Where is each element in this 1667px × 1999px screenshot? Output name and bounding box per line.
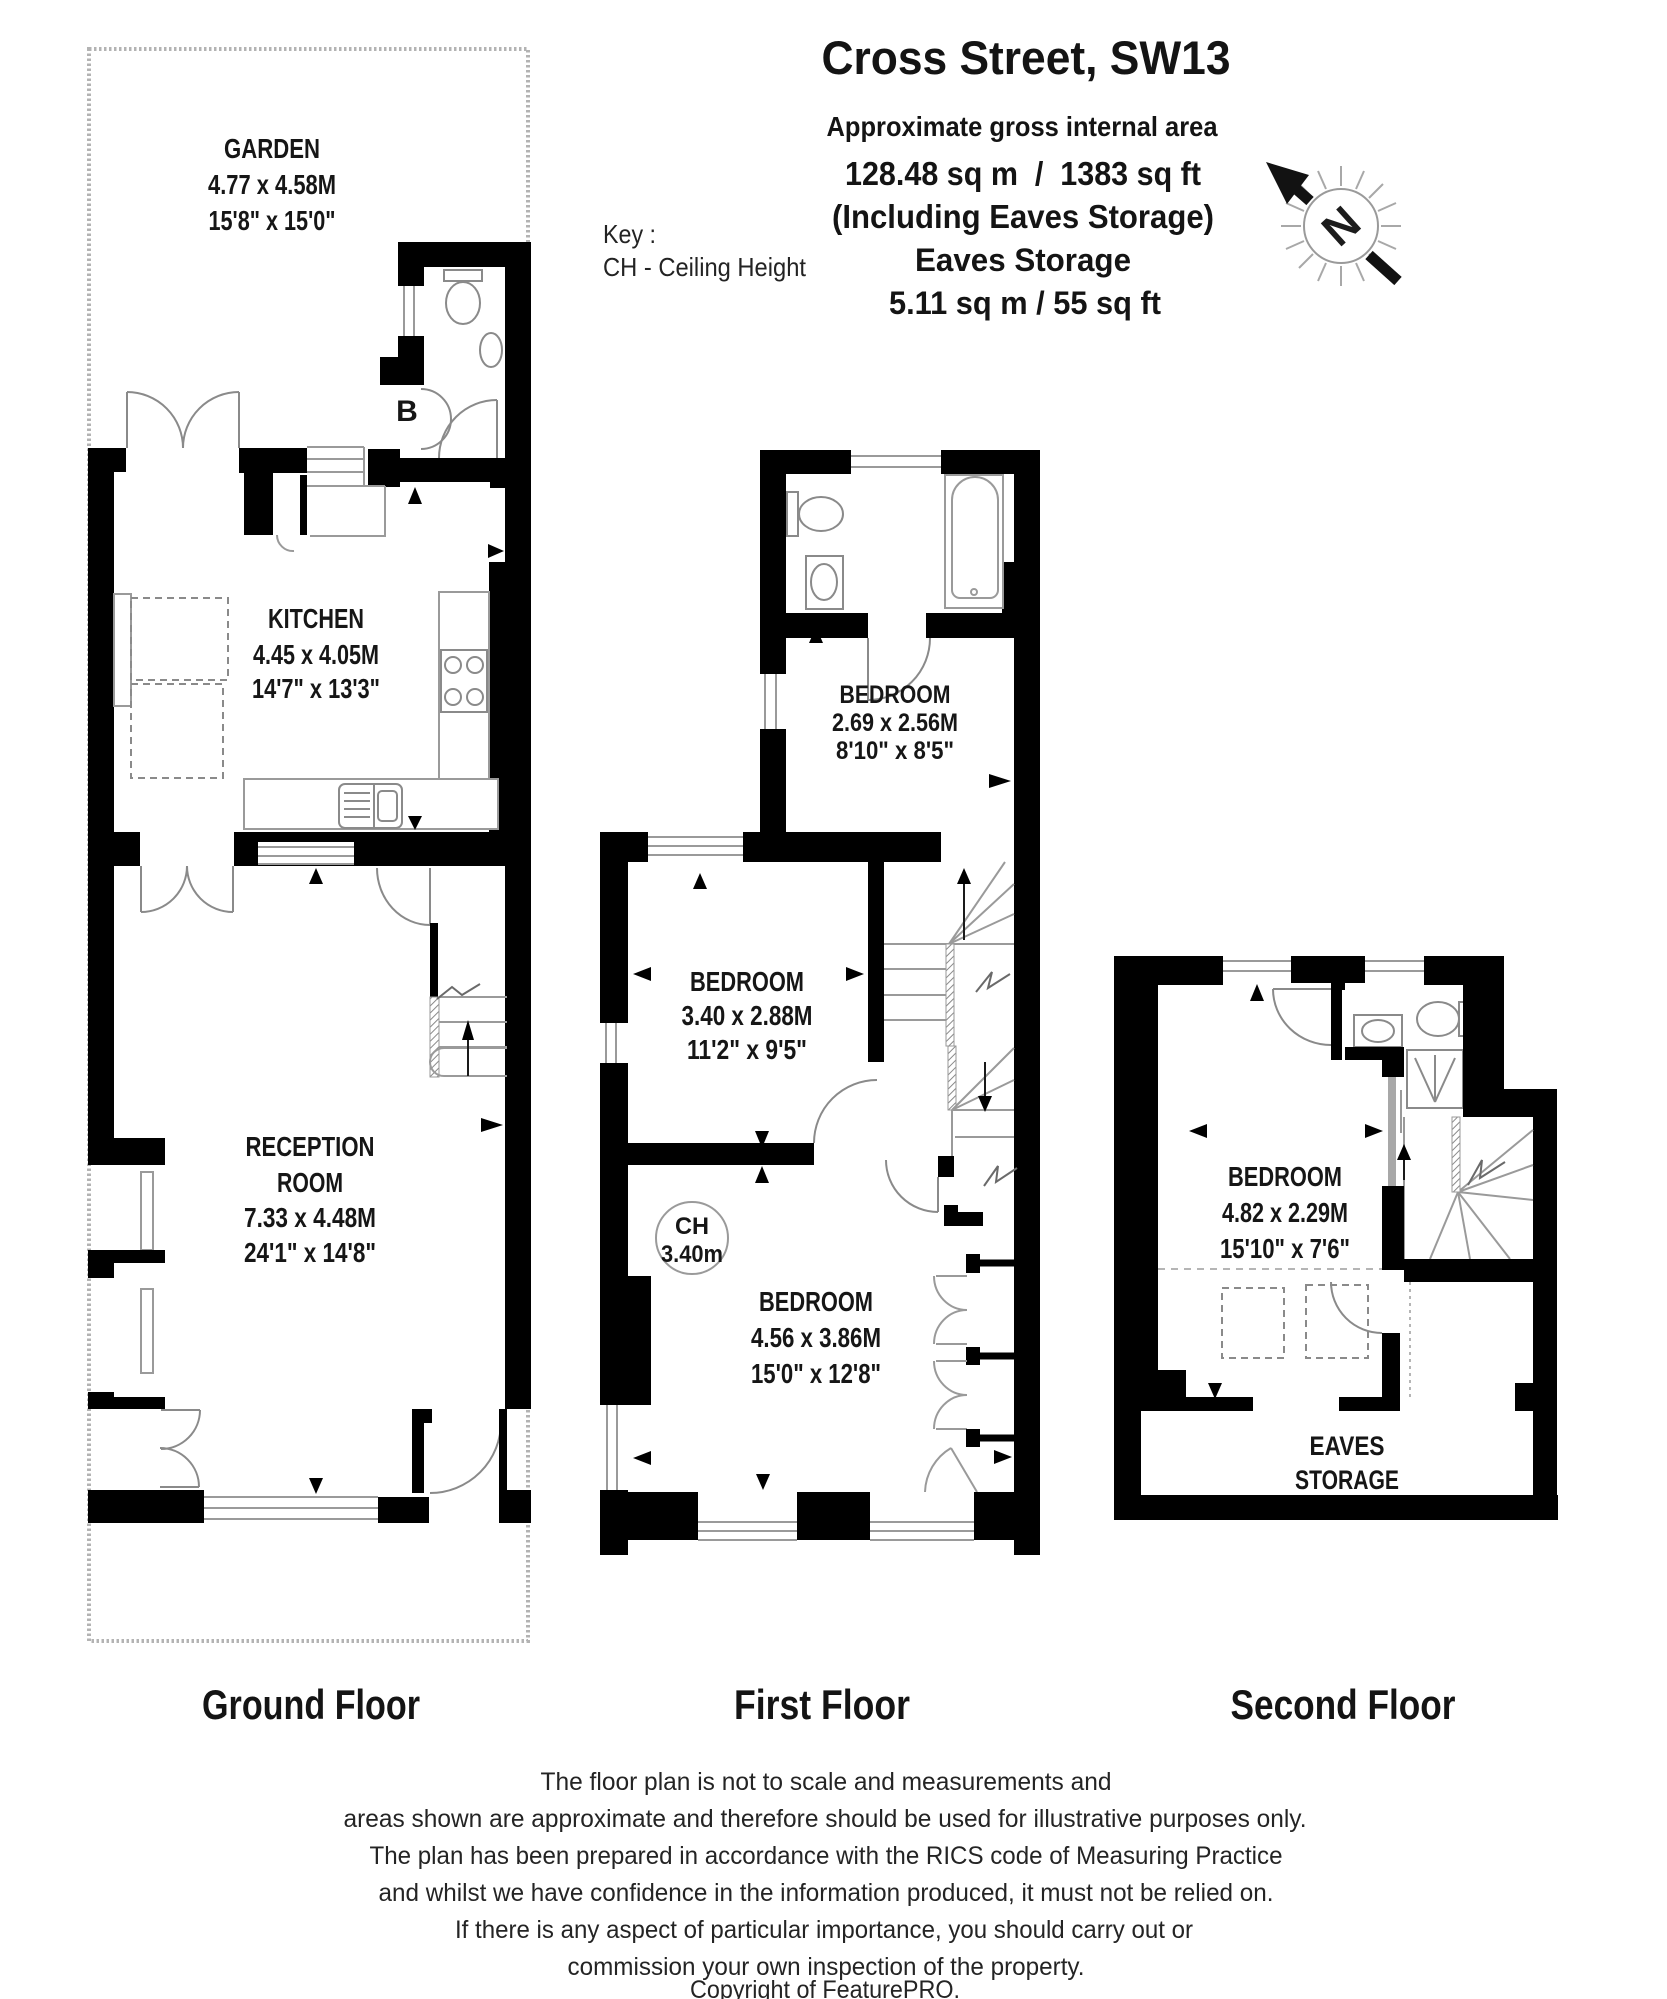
svg-text:CH: CH [675, 1213, 709, 1240]
svg-text:KITCHEN: KITCHEN [268, 603, 364, 634]
svg-text:15'8" x 15'0": 15'8" x 15'0" [209, 205, 336, 236]
svg-text:15'0" x 12'8": 15'0" x 12'8" [751, 1358, 881, 1389]
svg-text:7.33 x 4.48M: 7.33 x 4.48M [244, 1202, 376, 1233]
svg-text:4.45 x 4.05M: 4.45 x 4.05M [253, 639, 379, 670]
svg-text:Cross Street, SW13: Cross Street, SW13 [822, 31, 1231, 84]
svg-text:BEDROOM: BEDROOM [1228, 1161, 1342, 1192]
svg-text:5.11 sq m / 55 sq ft: 5.11 sq m / 55 sq ft [889, 285, 1161, 321]
svg-text:The plan has been prepared in: The plan has been prepared in accordance… [370, 1842, 1283, 1870]
svg-text:STORAGE: STORAGE [1295, 1465, 1399, 1495]
svg-text:CH - Ceiling Height: CH - Ceiling Height [603, 252, 807, 282]
svg-text:4.56 x 3.86M: 4.56 x 3.86M [751, 1322, 881, 1353]
svg-text:B: B [396, 395, 418, 428]
svg-text:The floor plan is not to scale: The floor plan is not to scale and measu… [541, 1768, 1112, 1796]
svg-text:(Including Eaves Storage): (Including Eaves Storage) [832, 198, 1214, 235]
svg-text:24'1" x 14'8": 24'1" x 14'8" [244, 1237, 376, 1268]
svg-text:If there is any aspect of part: If there is any aspect of particular imp… [455, 1916, 1193, 1944]
svg-text:EAVES: EAVES [1310, 1431, 1385, 1461]
svg-text:3.40 x 2.88M: 3.40 x 2.88M [682, 1000, 813, 1031]
svg-text:Eaves Storage: Eaves Storage [915, 242, 1131, 278]
svg-text:3.40m: 3.40m [661, 1241, 723, 1268]
svg-text:2.69 x 2.56M: 2.69 x 2.56M [832, 709, 958, 737]
svg-text:11'2" x 9'5": 11'2" x 9'5" [687, 1034, 807, 1065]
svg-text:14'7" x 13'3": 14'7" x 13'3" [252, 673, 380, 704]
svg-text:Ground Floor: Ground Floor [202, 1681, 420, 1728]
svg-text:and whilst we have confidence: and whilst we have confidence in the inf… [379, 1879, 1274, 1907]
svg-text:GARDEN: GARDEN [224, 133, 320, 164]
svg-text:BEDROOM: BEDROOM [840, 681, 951, 709]
svg-text:4.82 x 2.29M: 4.82 x 2.29M [1222, 1197, 1348, 1228]
svg-text:First Floor: First Floor [734, 1681, 910, 1728]
svg-text:Copyright of FeaturePRO.: Copyright of FeaturePRO. [690, 1976, 960, 1999]
svg-text:BEDROOM: BEDROOM [759, 1286, 873, 1317]
svg-text:areas shown are approximate an: areas shown are approximate and therefor… [344, 1805, 1307, 1833]
svg-text:Second Floor: Second Floor [1231, 1681, 1456, 1728]
svg-text:15'10" x 7'6": 15'10" x 7'6" [1220, 1233, 1350, 1264]
svg-text:4.77 x 4.58M: 4.77 x 4.58M [208, 169, 336, 200]
svg-text:Key :: Key : [603, 219, 656, 249]
svg-text:ROOM: ROOM [277, 1167, 343, 1198]
svg-text:BEDROOM: BEDROOM [690, 966, 804, 997]
svg-text:8'10" x 8'5": 8'10" x 8'5" [836, 737, 954, 765]
svg-text:Approximate gross internal are: Approximate gross internal area [827, 111, 1218, 142]
svg-text:128.48 sq m / 1383 sq ft: 128.48 sq m / 1383 sq ft [845, 155, 1201, 192]
svg-text:RECEPTION: RECEPTION [246, 1131, 375, 1162]
